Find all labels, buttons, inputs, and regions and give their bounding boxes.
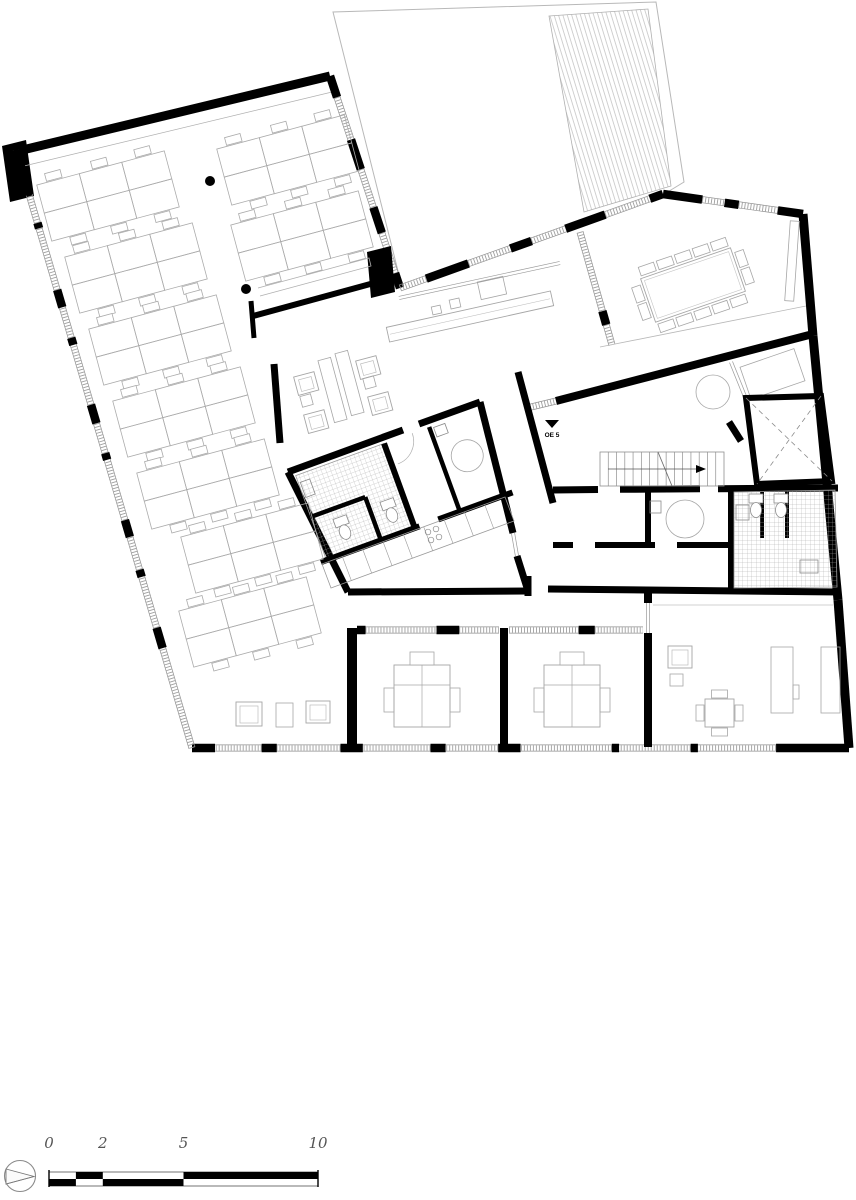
desk xyxy=(316,191,366,230)
lounge-table xyxy=(363,376,376,389)
desk xyxy=(150,223,200,262)
seat-outer xyxy=(304,410,329,434)
desk xyxy=(144,490,194,529)
meeting-sideboard xyxy=(785,221,800,301)
wall-west-frame xyxy=(19,149,195,747)
floor-plan-drawing: OE 502510 xyxy=(0,0,856,1200)
wall-ne-left-window xyxy=(468,249,510,264)
lounge-armchair xyxy=(356,356,381,380)
wall-terrace-west-window xyxy=(361,169,374,207)
small-sink xyxy=(434,423,449,437)
desk xyxy=(174,295,224,334)
desk xyxy=(281,230,331,269)
wall-west-window xyxy=(39,228,57,290)
desk xyxy=(221,588,271,627)
plan-layer xyxy=(2,2,849,751)
desk xyxy=(224,166,274,205)
chair xyxy=(239,210,257,222)
scale-bar-segment xyxy=(76,1172,103,1179)
cistern xyxy=(774,494,788,503)
desk xyxy=(96,346,146,385)
cooktop-ring xyxy=(436,534,442,540)
chair xyxy=(296,637,314,649)
side-table xyxy=(670,674,683,686)
desk xyxy=(163,406,213,445)
chair xyxy=(712,728,728,736)
door-swing xyxy=(390,433,421,464)
desk xyxy=(188,554,238,593)
wall-ne-right-pier xyxy=(725,203,739,205)
chair xyxy=(328,186,346,198)
desk xyxy=(323,219,373,258)
seat-inner xyxy=(361,361,377,376)
meeting-room-glass-wall-pier xyxy=(602,311,606,325)
car-diagonal xyxy=(757,396,821,484)
table-top xyxy=(705,699,734,727)
chair xyxy=(696,705,704,721)
desk-cluster xyxy=(62,214,209,322)
desk-cluster xyxy=(214,106,361,214)
meeting-room-glass-wall-frame xyxy=(577,233,609,346)
waiting-armchair xyxy=(306,701,330,723)
wc-corridor-wall-b xyxy=(620,489,700,490)
core-room-split xyxy=(429,427,459,510)
chair xyxy=(334,175,352,187)
wall-terrace-west-pier xyxy=(330,76,337,97)
wall-ne-right-window xyxy=(702,200,724,203)
desk xyxy=(229,467,279,506)
wall-west-pier xyxy=(91,405,96,424)
chair xyxy=(170,521,188,533)
terrace-deck-hatch xyxy=(549,9,671,212)
wall-ne-left-pier xyxy=(566,215,605,229)
desk xyxy=(223,514,273,553)
chair xyxy=(234,509,252,521)
wall-west-pier xyxy=(57,290,62,307)
direction-arrow xyxy=(696,465,706,473)
chair xyxy=(284,197,302,209)
desk xyxy=(205,395,255,434)
core-wall-right-b xyxy=(517,556,528,591)
counter-division xyxy=(383,542,392,566)
seat-inner xyxy=(240,706,258,723)
chair xyxy=(712,690,728,698)
side-return xyxy=(600,688,610,712)
counter-end-unit xyxy=(477,276,506,299)
sideboard-tab xyxy=(793,685,799,699)
desk xyxy=(65,246,115,285)
chair xyxy=(212,659,230,671)
chair xyxy=(278,498,296,510)
wc-corridor-wall-c xyxy=(718,488,838,489)
desk xyxy=(267,154,317,193)
chair xyxy=(276,572,294,584)
chair xyxy=(560,652,584,665)
chair xyxy=(291,186,309,198)
desk-cluster xyxy=(134,430,281,538)
wall-west-pier xyxy=(105,453,107,460)
wall-west-pier xyxy=(125,520,130,537)
desk xyxy=(181,323,231,362)
small-sink xyxy=(434,423,449,437)
counter-item xyxy=(431,305,442,315)
north-arrow-pointer xyxy=(6,1169,34,1184)
level-marker-triangle xyxy=(545,420,559,428)
cistern xyxy=(749,494,763,503)
office-desk xyxy=(534,652,610,727)
toilet xyxy=(774,494,788,518)
counter-division xyxy=(485,504,494,528)
scale-bar: 02510 xyxy=(44,1134,328,1187)
cooktop-ring xyxy=(433,526,439,532)
wall-west-pier xyxy=(140,570,142,577)
side-return xyxy=(450,688,460,712)
desk-cluster xyxy=(176,568,323,676)
desk xyxy=(122,151,172,190)
wc-round-table xyxy=(666,500,704,538)
core-kitchen-wall-b xyxy=(438,492,512,519)
desk xyxy=(113,390,163,429)
chair xyxy=(211,510,229,522)
wall-west-window xyxy=(142,577,157,628)
cooktop-ring xyxy=(425,529,431,535)
wc-tile-hatch xyxy=(734,490,837,588)
sideboard xyxy=(771,647,793,713)
scale-bar-segment xyxy=(103,1179,184,1186)
counter-division xyxy=(444,519,453,543)
seat-outer xyxy=(368,392,393,416)
desk-cluster xyxy=(228,182,375,290)
staircase xyxy=(600,452,724,486)
sideboard xyxy=(821,647,840,713)
band-top-wall xyxy=(548,589,840,592)
reception-counter-inner xyxy=(390,299,550,334)
chair xyxy=(270,121,288,133)
chair xyxy=(348,251,366,263)
desk xyxy=(273,202,323,241)
scale-bar-label: 0 xyxy=(44,1134,54,1152)
counter-division xyxy=(403,534,412,558)
side-table xyxy=(670,674,683,686)
seat-outer xyxy=(294,372,319,396)
desk xyxy=(198,367,248,406)
scale-bar-segment xyxy=(184,1172,319,1179)
desk xyxy=(222,439,272,478)
waiting-table xyxy=(276,703,293,727)
wall-ne-left-pier xyxy=(650,194,663,199)
chair xyxy=(90,157,108,169)
desk xyxy=(139,334,189,373)
core-wall-right-a xyxy=(480,402,513,533)
scale-bar-segment xyxy=(49,1179,76,1186)
chair xyxy=(214,585,232,597)
chair xyxy=(250,197,268,209)
lobby-shelf xyxy=(740,349,805,400)
sideboard xyxy=(821,647,840,713)
chair xyxy=(225,134,243,146)
toilet xyxy=(749,494,763,518)
desk xyxy=(217,138,267,177)
scale-bar-label: 2 xyxy=(97,1134,108,1152)
wall-west-window xyxy=(107,460,125,520)
side-return xyxy=(384,688,394,712)
desk xyxy=(229,616,279,655)
sideboard xyxy=(771,647,793,713)
reception-counter xyxy=(386,291,553,342)
meeting-room-glass-wall-frame xyxy=(583,231,615,344)
core-wall-top-b xyxy=(419,402,480,424)
wall-east-1 xyxy=(803,214,813,336)
seat-inner xyxy=(672,650,688,665)
entry-pier xyxy=(367,246,395,298)
desk xyxy=(137,462,187,501)
bowl xyxy=(751,503,762,518)
wall-top xyxy=(10,76,330,153)
armchair xyxy=(668,646,692,668)
desk xyxy=(157,251,207,290)
annotation-layer: OE 502510 xyxy=(5,432,560,1192)
desk xyxy=(37,174,87,213)
desk xyxy=(271,605,321,644)
seat-inner xyxy=(310,705,326,720)
wall-ne-left-window xyxy=(532,229,566,241)
core-wall-bottom xyxy=(348,591,528,592)
chair xyxy=(45,170,63,182)
lounge-bench xyxy=(318,357,347,422)
entry-screen-wall xyxy=(253,283,374,316)
chair xyxy=(305,262,323,274)
desk xyxy=(129,179,179,218)
floor-plan-page: OE 502510 xyxy=(0,0,856,1200)
wall-west-pier xyxy=(157,628,163,648)
desk-cluster xyxy=(110,358,257,466)
counter-division xyxy=(363,549,372,573)
desk xyxy=(87,190,137,229)
desk xyxy=(131,306,181,345)
column xyxy=(241,284,251,294)
desk xyxy=(115,262,165,301)
shower-basin xyxy=(447,435,488,476)
lounge-bench xyxy=(318,357,347,422)
cooktop-ring xyxy=(428,537,434,543)
wall-ne-right-pier xyxy=(663,194,702,200)
wall-west-pier xyxy=(37,223,39,228)
small-sink xyxy=(650,501,661,513)
meeting-room-glass-wall-window xyxy=(606,325,612,345)
lobby-round-table xyxy=(696,375,730,409)
desk xyxy=(238,242,288,281)
side-return xyxy=(534,688,544,712)
desk xyxy=(231,542,281,581)
desk xyxy=(264,577,314,616)
entry-screen-stub xyxy=(251,301,254,338)
desk xyxy=(231,214,281,253)
wall-west-window xyxy=(163,648,192,748)
chair xyxy=(187,596,205,608)
lounge-table xyxy=(363,376,376,389)
meeting-table xyxy=(626,233,760,337)
wall-ne-left-pier xyxy=(510,241,531,249)
counter-division xyxy=(464,512,473,536)
desk xyxy=(179,450,229,489)
desk-cluster xyxy=(86,286,233,394)
wall-terrace-west-pier xyxy=(373,207,381,232)
table-top xyxy=(641,248,746,322)
free-wall xyxy=(274,364,280,443)
small-sink xyxy=(650,501,661,513)
chair xyxy=(232,583,250,595)
wall-west-window xyxy=(73,345,91,405)
desk xyxy=(107,234,157,273)
bowl xyxy=(776,503,787,518)
lounge-armchair xyxy=(368,392,393,416)
chair xyxy=(410,652,434,665)
counter-end-unit xyxy=(477,276,506,299)
chair xyxy=(314,110,332,122)
desk xyxy=(89,318,139,357)
chair xyxy=(253,648,271,660)
chair xyxy=(298,563,316,575)
small-meeting-table xyxy=(696,690,743,736)
desk xyxy=(120,418,170,457)
level-marker-label: OE 5 xyxy=(545,432,560,439)
desk xyxy=(186,628,236,667)
seat-outer xyxy=(356,356,381,380)
column xyxy=(205,176,215,186)
desk xyxy=(72,274,122,313)
desk xyxy=(259,126,309,165)
chair xyxy=(189,522,207,534)
desk xyxy=(79,162,129,201)
scale-bar-label: 10 xyxy=(308,1134,328,1152)
chair xyxy=(735,705,743,721)
wall-west-pier xyxy=(71,338,73,345)
desk xyxy=(44,202,94,241)
counter-item xyxy=(431,305,442,315)
lounge-table xyxy=(300,394,313,407)
lobby-wall-stub xyxy=(729,422,741,441)
seat-inner xyxy=(373,397,389,412)
wall-west-frame xyxy=(13,151,189,749)
north-arrow-icon xyxy=(5,1161,36,1192)
sideboard-tab xyxy=(793,685,799,699)
wall-terrace-west-pier xyxy=(351,140,361,170)
chair xyxy=(264,273,282,285)
desk xyxy=(155,378,205,417)
core-window xyxy=(515,533,519,556)
waiting-table xyxy=(276,703,293,727)
wall-ne-right-window xyxy=(739,205,778,211)
seat-inner xyxy=(309,415,325,430)
meeting-room-glass-wall-window xyxy=(580,232,602,311)
chair xyxy=(255,574,273,586)
chair xyxy=(134,146,152,158)
counter-item xyxy=(449,298,461,309)
counter-item xyxy=(449,298,461,309)
meeting-room-south-window-window xyxy=(527,401,556,408)
core-window xyxy=(511,533,515,556)
lounge-table xyxy=(300,394,313,407)
wall-ne-right-pier xyxy=(778,210,803,214)
desk xyxy=(273,531,323,570)
meeting-sideboard xyxy=(785,221,800,301)
scale-bar-label: 5 xyxy=(179,1134,189,1152)
desk xyxy=(181,526,231,565)
office-desk xyxy=(384,652,460,727)
seat-inner xyxy=(299,377,315,392)
wall-ne-left-pier xyxy=(426,264,468,279)
lobby-shelf xyxy=(740,349,805,400)
wc-corridor-wall-a xyxy=(553,490,598,491)
waiting-armchair xyxy=(236,702,262,726)
desk xyxy=(179,600,229,639)
desk xyxy=(187,478,237,517)
lounge-armchair xyxy=(304,410,329,434)
lounge-armchair xyxy=(294,372,319,396)
chair xyxy=(254,499,272,511)
